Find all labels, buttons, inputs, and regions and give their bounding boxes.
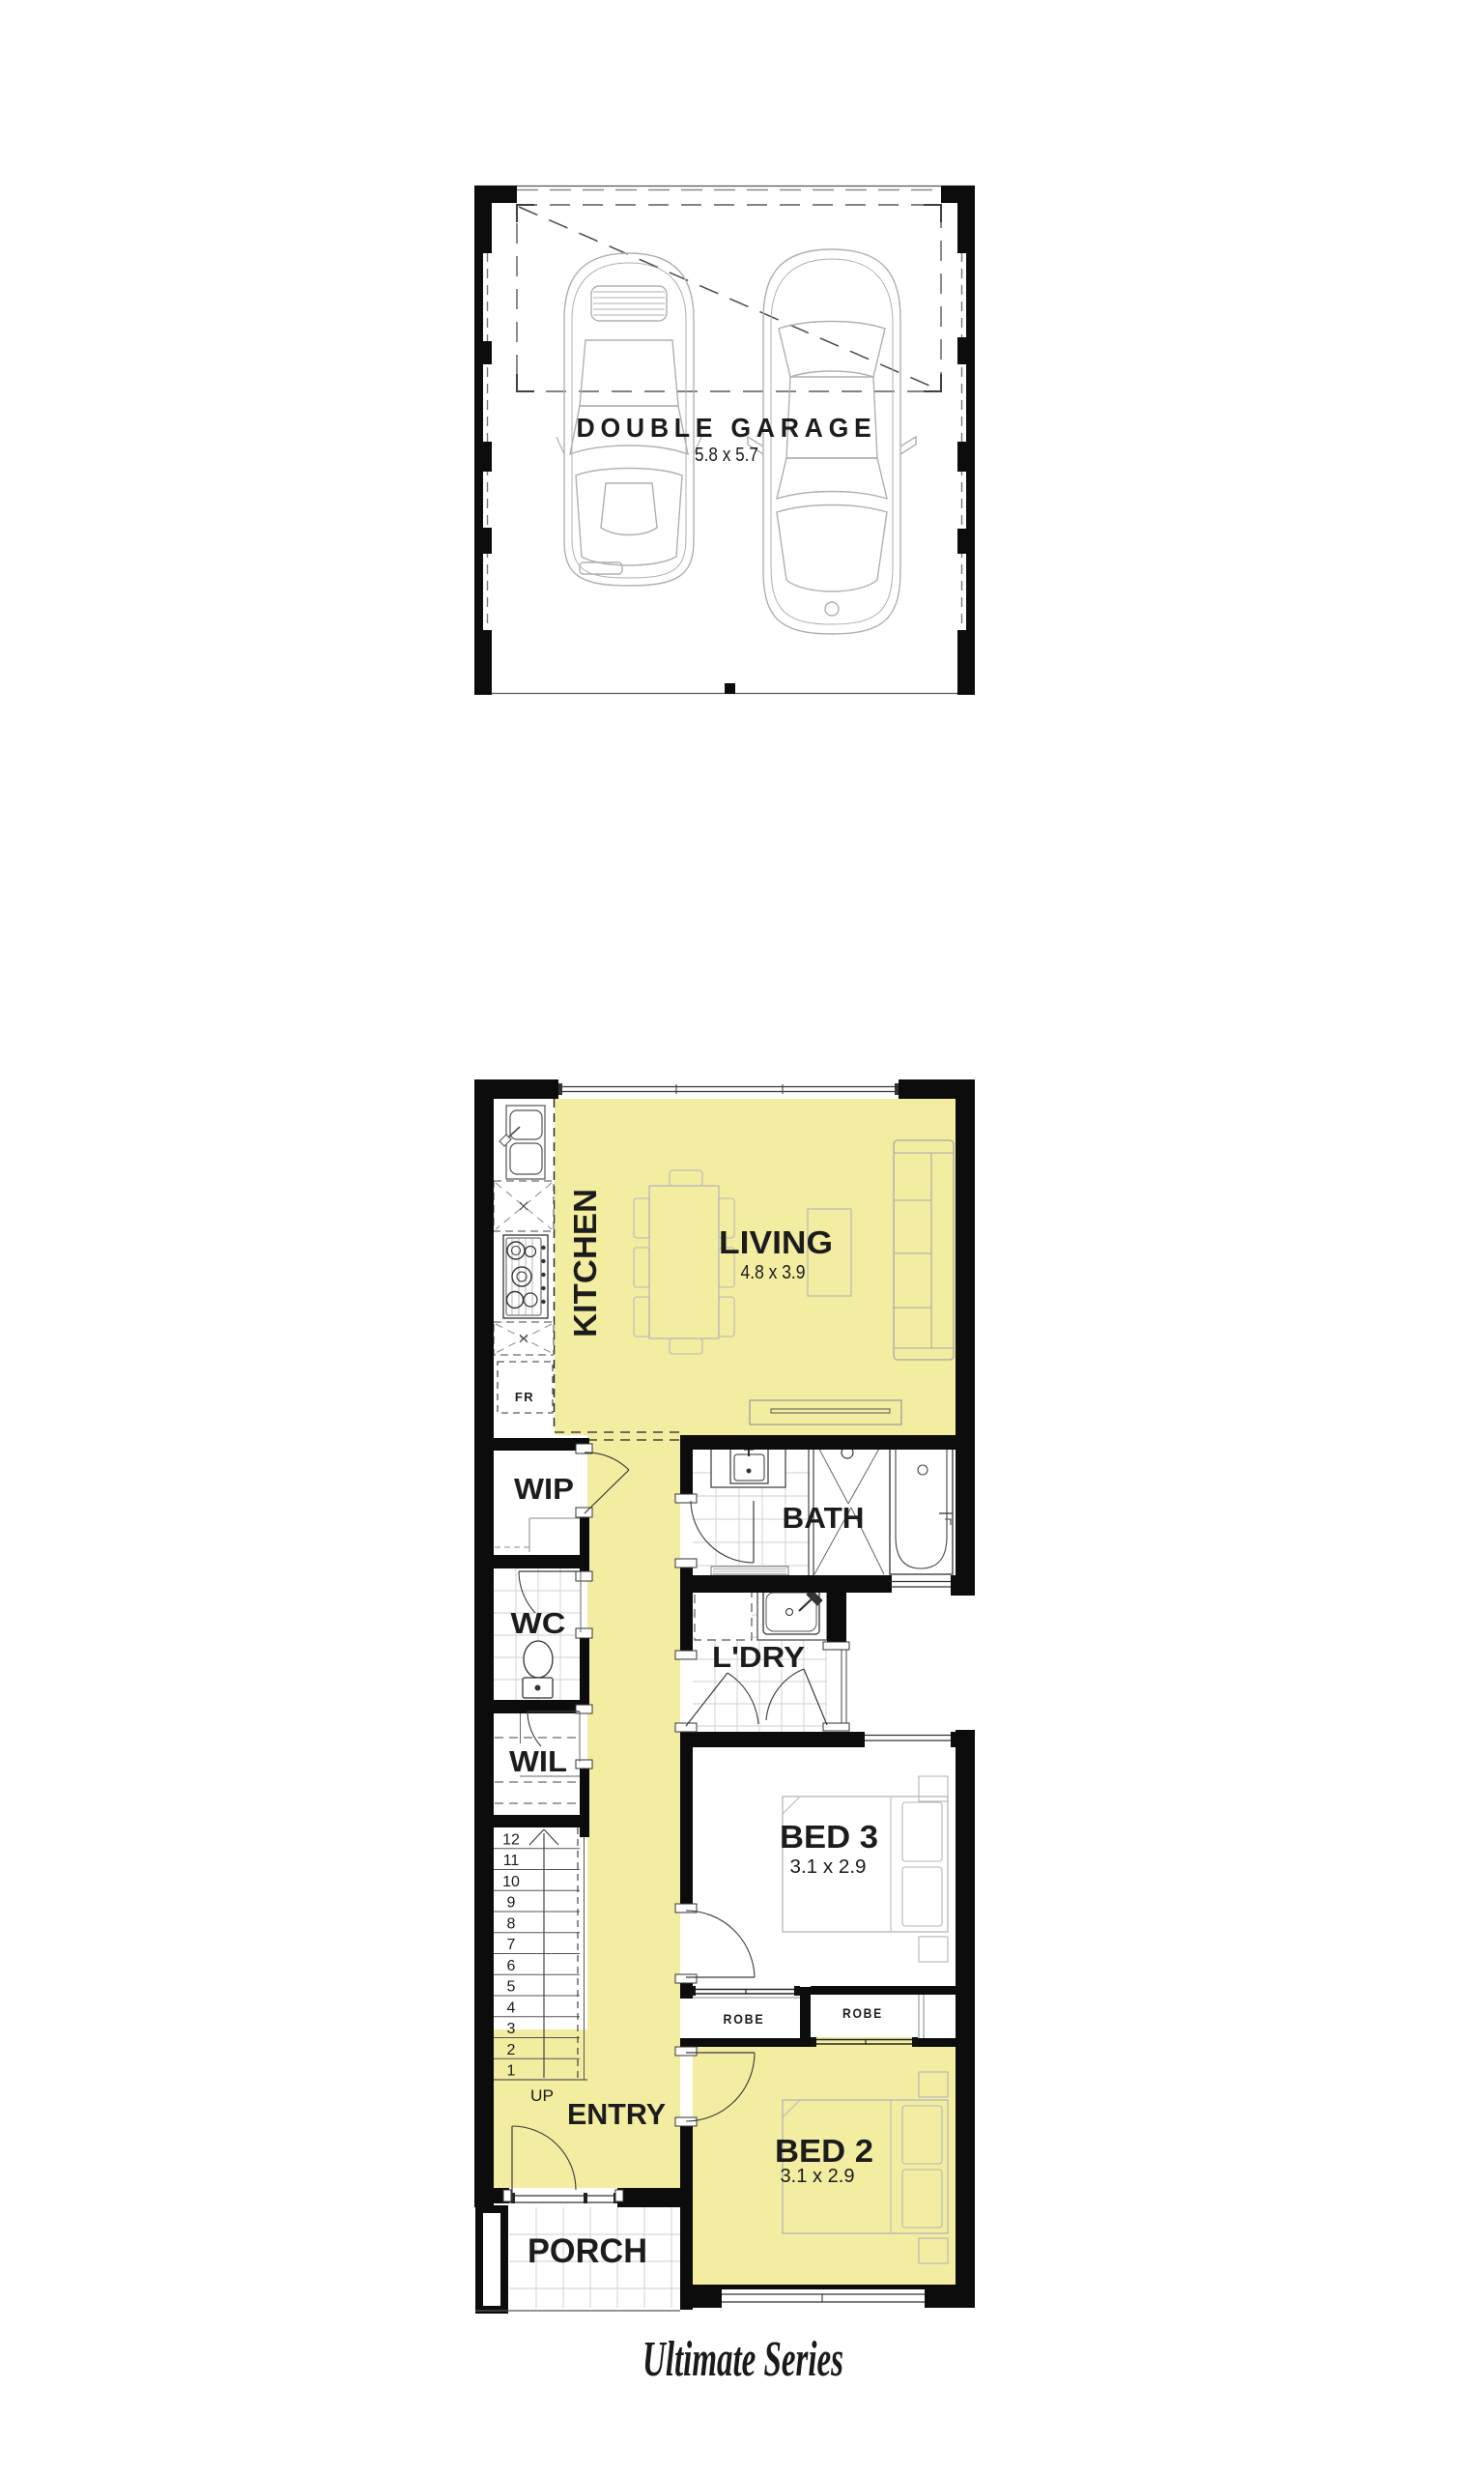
svg-text:WIL: WIL [509, 1744, 567, 1778]
svg-text:2: 2 [507, 2042, 516, 2058]
svg-text:3: 3 [507, 2021, 516, 2037]
svg-text:6: 6 [507, 1958, 516, 1974]
svg-text:FR: FR [515, 1390, 534, 1404]
svg-text:WIP: WIP [514, 1472, 574, 1506]
svg-text:12: 12 [502, 1831, 520, 1848]
svg-text:LIVING: LIVING [719, 1224, 833, 1260]
svg-text:ROBE: ROBE [842, 2005, 883, 2021]
svg-text:WC: WC [511, 1606, 566, 1640]
svg-text:3.1 x 2.9: 3.1 x 2.9 [781, 2166, 855, 2187]
svg-text:3.1 x 2.9: 3.1 x 2.9 [790, 1856, 867, 1878]
svg-text:1: 1 [507, 2063, 516, 2080]
svg-text:ROBE: ROBE [724, 2011, 765, 2027]
svg-text:5.8 x 5.7: 5.8 x 5.7 [695, 445, 758, 466]
svg-text:BATH: BATH [783, 1501, 865, 1535]
svg-text:DOUBLE GARAGE: DOUBLE GARAGE [577, 413, 877, 443]
svg-text:4.8 x 3.9: 4.8 x 3.9 [741, 1262, 806, 1283]
svg-text:UP: UP [530, 2086, 554, 2105]
svg-text:5: 5 [507, 1979, 516, 1996]
svg-text:BED 2: BED 2 [775, 2133, 873, 2169]
svg-text:9: 9 [507, 1895, 516, 1912]
svg-text:L'DRY: L'DRY [712, 1640, 805, 1674]
svg-text:KITCHEN: KITCHEN [567, 1189, 603, 1338]
svg-text:8: 8 [507, 1915, 516, 1932]
svg-text:PORCH: PORCH [528, 2232, 647, 2270]
svg-text:7: 7 [507, 1937, 516, 1953]
svg-text:BED 3: BED 3 [780, 1819, 878, 1855]
svg-text:4: 4 [507, 1999, 516, 2016]
svg-text:ENTRY: ENTRY [567, 2097, 666, 2131]
svg-text:10: 10 [502, 1874, 520, 1890]
svg-text:Ultimate Series: Ultimate Series [642, 2332, 843, 2387]
svg-text:11: 11 [503, 1853, 520, 1869]
